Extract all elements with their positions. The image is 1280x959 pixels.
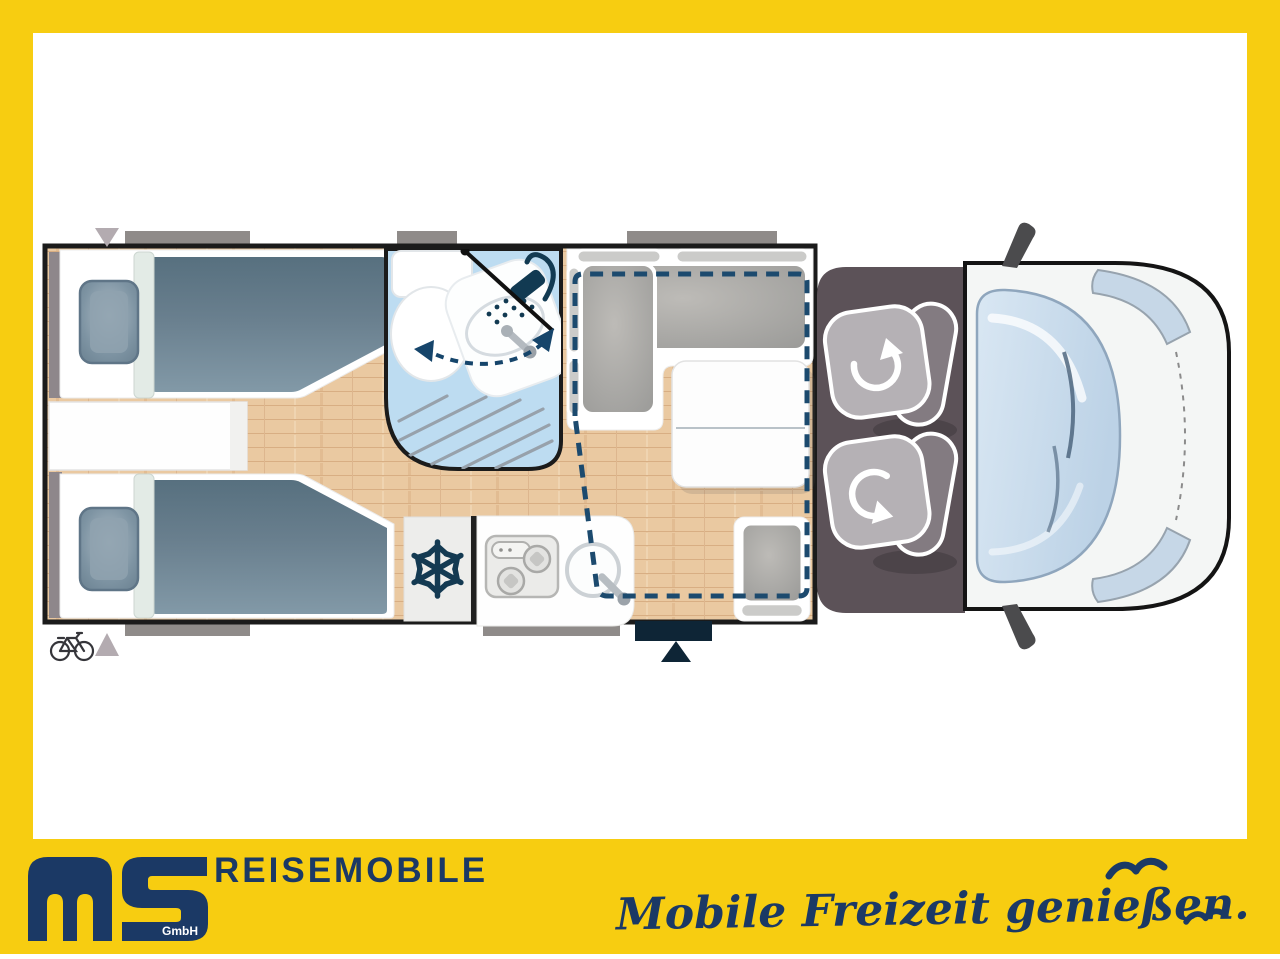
entry-arrow-icon — [661, 641, 691, 662]
side-seat — [734, 517, 810, 621]
floorplan-graphic — [0, 0, 1280, 959]
chest-divider — [230, 402, 247, 470]
pillow — [80, 508, 138, 590]
bicycle-icon — [51, 633, 93, 660]
dinette-table — [672, 361, 809, 487]
swivel-seat-bottom — [821, 430, 960, 559]
driver-cab — [817, 223, 1229, 650]
swivel-seat-top — [821, 300, 960, 429]
entry-door — [635, 621, 712, 641]
rear-marker-bottom-icon — [95, 633, 119, 656]
bottom-edge — [0, 954, 1280, 959]
flyer-page: REISEMOBILE GmbH Mobile Freizeit genieße… — [0, 0, 1280, 959]
logo-suffix: GmbH — [162, 924, 198, 938]
pillow — [80, 281, 138, 363]
seagull-icon — [1109, 861, 1164, 876]
kitchen-divider-wall — [471, 516, 477, 622]
bench-cushion-left — [581, 264, 655, 414]
bathroom — [386, 247, 578, 470]
center-step-chest — [49, 402, 247, 470]
two-burner-hob — [486, 536, 558, 597]
wordmark: REISEMOBILE — [214, 851, 488, 891]
kitchen — [404, 516, 634, 626]
